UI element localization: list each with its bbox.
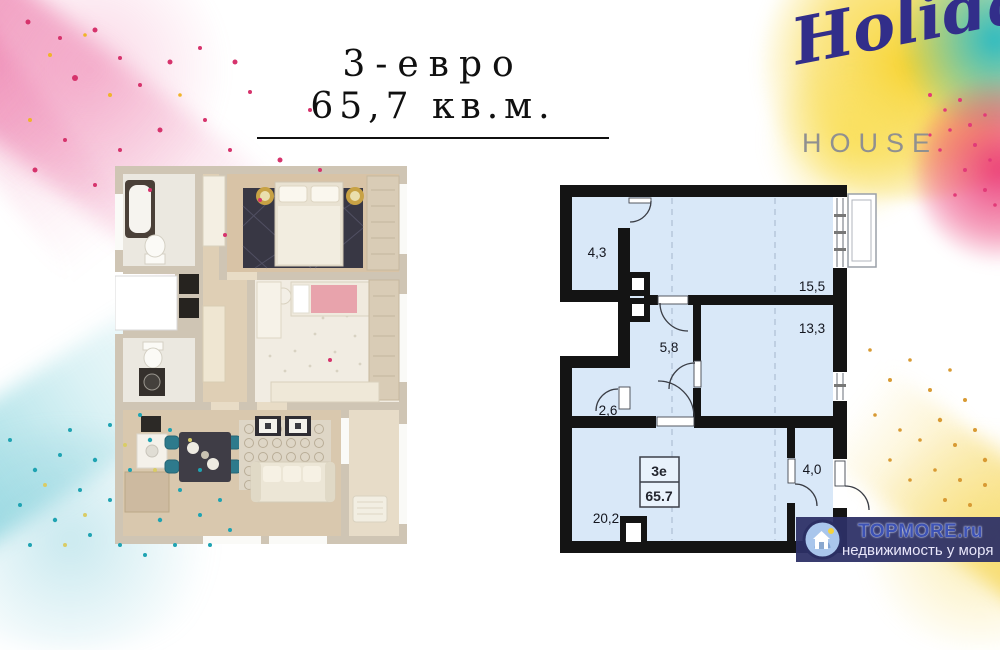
watermark-site-name: TOPMORE.ru xyxy=(858,521,983,543)
washing-machine xyxy=(139,368,165,396)
area-label-5-8: 5,8 xyxy=(660,340,679,355)
area-label-4-3: 4,3 xyxy=(588,245,607,260)
apartment-info-box: 3е 65.7 xyxy=(640,457,679,507)
apartment-area-title: 65,7 кв.м. xyxy=(233,86,633,128)
kids-dresser xyxy=(271,382,379,402)
plan2d-room-fill xyxy=(566,190,841,548)
balcony-window xyxy=(833,197,847,268)
kids-bed xyxy=(291,282,373,316)
double-bed xyxy=(275,182,343,266)
brand-logo-subtitle: HOUSE xyxy=(802,128,938,159)
building-notch xyxy=(115,276,177,330)
bathtub xyxy=(125,180,155,238)
title-block: 3-евро 65,7 кв.м. xyxy=(233,44,633,139)
toilet-bottom xyxy=(143,342,163,368)
hall-cabinet xyxy=(203,306,225,382)
area-label-2-6: 2,6 xyxy=(599,403,618,418)
sofa xyxy=(251,462,335,502)
bedroom-window xyxy=(833,372,847,401)
watermark-house-icon xyxy=(801,518,844,561)
confetti-top-right xyxy=(928,93,997,207)
hall-wardrobe xyxy=(203,176,225,246)
area-label-15-5: 15,5 xyxy=(799,279,825,294)
plan2d-notch xyxy=(545,302,626,356)
floor-plan-3d xyxy=(115,166,435,552)
kitchen-fridge xyxy=(141,416,161,432)
paint-splash-magenta xyxy=(915,75,1000,265)
apartment-total-area-label: 65.7 xyxy=(645,488,672,504)
bedroom-wardrobe xyxy=(367,176,399,270)
balcony-outline xyxy=(848,194,876,267)
toilet-top xyxy=(145,235,165,264)
area-label-4-0: 4,0 xyxy=(803,462,822,477)
apartment-type-title: 3-евро xyxy=(233,44,633,86)
balcony-lounger xyxy=(353,496,387,522)
brand-logo-script: Holiday xyxy=(786,0,1000,80)
floor-plan-2d: 4,3 15,5 13,3 5,8 2,6 20,2 4,0 3е 65.7 xyxy=(545,178,890,560)
kids-cabinet xyxy=(257,282,281,338)
apartment-type-label: 3е xyxy=(651,463,667,479)
title-underline xyxy=(257,137,609,139)
area-label-13-3: 13,3 xyxy=(799,321,825,336)
watermark-bar: TOPMORE.ru недвижимость у моря xyxy=(796,517,1000,562)
area-label-20-2: 20,2 xyxy=(593,511,619,526)
watermark-tagline: недвижимость у моря xyxy=(842,542,993,559)
